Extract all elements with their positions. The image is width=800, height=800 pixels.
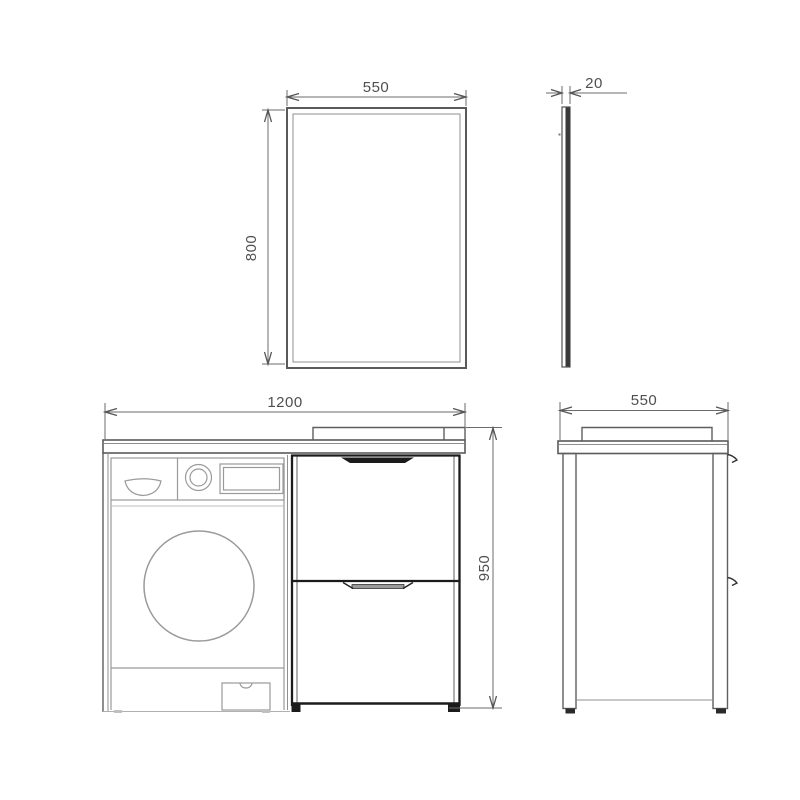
drawer-handle-top (341, 458, 414, 464)
mirror-front-view: 550 800 (243, 79, 466, 368)
front-leg (563, 454, 576, 709)
mirror-hanger-mark (559, 134, 561, 136)
dim-label-cabinet-depth: 550 (631, 392, 658, 409)
wall-hooks (728, 455, 738, 586)
drawer-handle-bottom (343, 583, 413, 589)
dim-mirror-width: 550 (287, 79, 466, 106)
mirror-side-dark-edge (566, 108, 571, 367)
technical-drawing: 550 800 20 (0, 0, 800, 800)
washer-display (220, 464, 283, 494)
washer-foot-left (114, 710, 122, 713)
wall-hook-icon (728, 578, 738, 586)
dim-label-mirror-depth: 20 (585, 75, 603, 92)
washing-machine (103, 455, 290, 713)
washer-foot-right (262, 710, 270, 713)
dim-cabinet-width: 1200 (105, 394, 465, 439)
countertop-side (558, 441, 728, 454)
washer-display-inner (224, 468, 280, 491)
back-leg (713, 454, 728, 709)
drawer-unit-foot-left (292, 705, 301, 713)
vanity-side-view: 550 (558, 392, 737, 714)
dim-cabinet-depth: 550 (560, 392, 728, 440)
mirror-outer-frame (287, 108, 466, 368)
side-foot-back (716, 709, 726, 714)
drawer-unit (291, 455, 461, 712)
washer-knob-inner (190, 469, 207, 486)
wall-hook-icon (728, 455, 738, 463)
side-foot-front (566, 709, 576, 714)
mirror-side-view: 20 (546, 75, 627, 367)
basin-rim-side (582, 428, 712, 442)
mirror-inner-frame (293, 114, 460, 362)
vanity-front-view: 1200 (103, 394, 502, 713)
basin-rim (313, 428, 465, 441)
dim-label-cabinet-height: 950 (476, 555, 493, 582)
dim-label-mirror-height: 800 (243, 235, 260, 262)
countertop (103, 440, 465, 453)
side-frame (563, 454, 728, 714)
dim-mirror-height: 800 (243, 110, 285, 364)
detergent-drawer-handle (125, 479, 161, 496)
dim-mirror-depth: 20 (546, 75, 627, 104)
drawing-canvas: 550 800 20 (0, 0, 800, 800)
cabinet-left-panel (103, 453, 108, 712)
dim-label-mirror-width: 550 (363, 79, 390, 96)
dim-cabinet-height: 950 (449, 428, 502, 709)
washer-door (144, 531, 254, 641)
washer-filter-flap (222, 683, 270, 710)
washer-knob (186, 465, 212, 491)
dim-label-cabinet-width: 1200 (267, 394, 302, 411)
